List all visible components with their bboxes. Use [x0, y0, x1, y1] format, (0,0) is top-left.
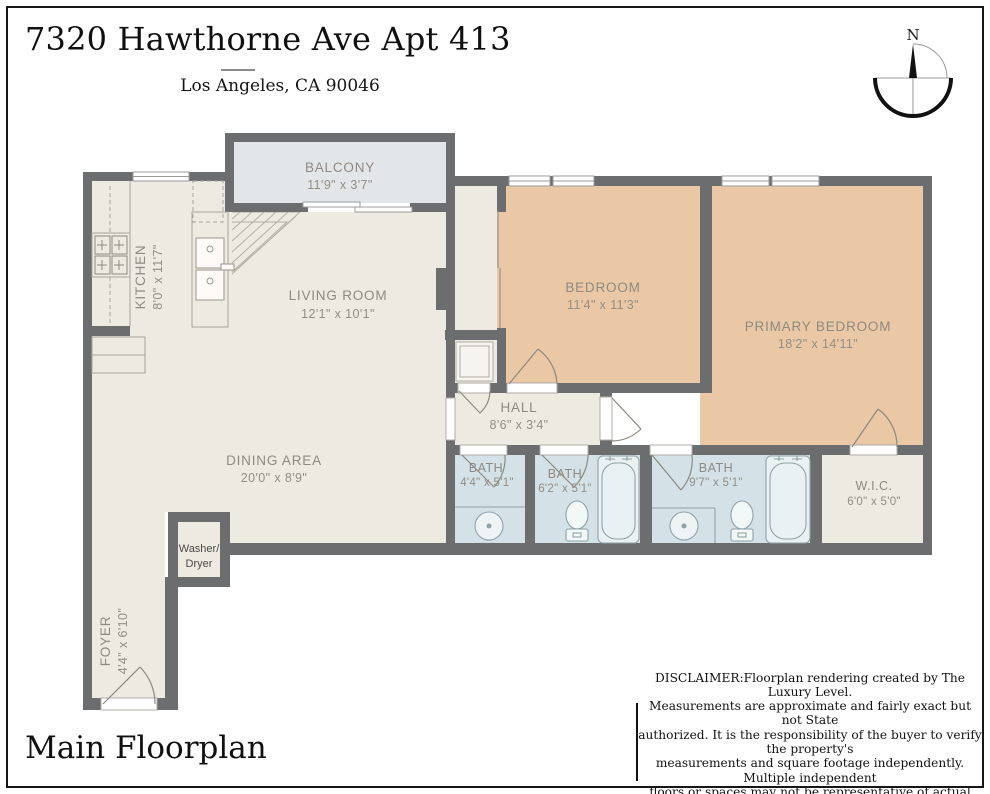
- wic-dims: 6'0" x 5'0": [847, 496, 901, 508]
- bath1-label: BATH: [469, 461, 503, 475]
- bedroom-label: BEDROOM: [565, 280, 640, 295]
- bath2-label: BATH: [548, 467, 582, 481]
- linen-shelf: [456, 342, 493, 381]
- hall-label: HALL: [501, 400, 538, 415]
- disclaimer-line: authorized. It is the responsibility of …: [638, 728, 982, 757]
- fridge: [92, 355, 145, 373]
- stove: [92, 233, 130, 277]
- balcony-label: BALCONY: [305, 160, 375, 175]
- balcony-dims: 11'9" x 3'7": [307, 178, 372, 192]
- bath3-dims: 9'7" x 5'1": [689, 477, 743, 489]
- kitchen-label: KITCHEN: [133, 245, 148, 310]
- sliding-door: [303, 202, 412, 212]
- bath3-label: BATH: [699, 461, 733, 475]
- disclaimer-line: measurements and square footage independ…: [638, 756, 982, 785]
- foyer-dims: 4'4" x 6'10": [116, 608, 130, 674]
- plan-name-label: Main Floorplan: [25, 730, 267, 766]
- disclaimer-box: DISCLAIMER:Floorplan rendering created b…: [636, 703, 982, 781]
- dining-area-label: DINING AREA: [226, 453, 322, 468]
- washer-dryer-label2: Dryer: [186, 558, 213, 570]
- bath2-toilet: [566, 501, 588, 541]
- bath3-toilet: [731, 501, 753, 541]
- bath2-dims: 6'2" x 5'1": [538, 483, 592, 495]
- primary-bedroom-label: PRIMARY BEDROOM: [745, 319, 892, 334]
- floorplan-page: 7320 Hawthorne Ave Apt 413 Los Angeles, …: [0, 0, 990, 794]
- bedroom-dims: 11'4" x 11'3": [567, 298, 639, 312]
- living-room-dims: 12'1" x 10'1": [301, 307, 375, 321]
- bath2-tub: [598, 456, 639, 543]
- foyer-label: FOYER: [98, 616, 113, 667]
- disclaimer-line: DISCLAIMER:Floorplan rendering created b…: [638, 671, 982, 700]
- bath1-dims: 4'4" x 5'1": [460, 477, 514, 489]
- kitchen-dims: 8'0" x 11'7": [151, 244, 165, 309]
- disclaimer-line: floors or spaces may not be representati…: [638, 785, 982, 794]
- disclaimer-line: Measurements are approximate and fairly …: [638, 699, 982, 728]
- fridge: [92, 337, 145, 355]
- bath3-tub: [766, 456, 810, 543]
- hall-dims: 8'6" x 3'4": [489, 418, 548, 432]
- compass-icon: N: [875, 26, 951, 116]
- primary-bedroom-dims: 18'2" x 14'11": [778, 337, 858, 351]
- dining-area-dims: 20'0" x 8'9": [241, 471, 307, 485]
- compass-north-label: N: [906, 26, 919, 44]
- wic-label: W.I.C.: [855, 479, 892, 493]
- washer-dryer-label: Washer/: [179, 543, 220, 555]
- living-room-label: LIVING ROOM: [289, 288, 388, 303]
